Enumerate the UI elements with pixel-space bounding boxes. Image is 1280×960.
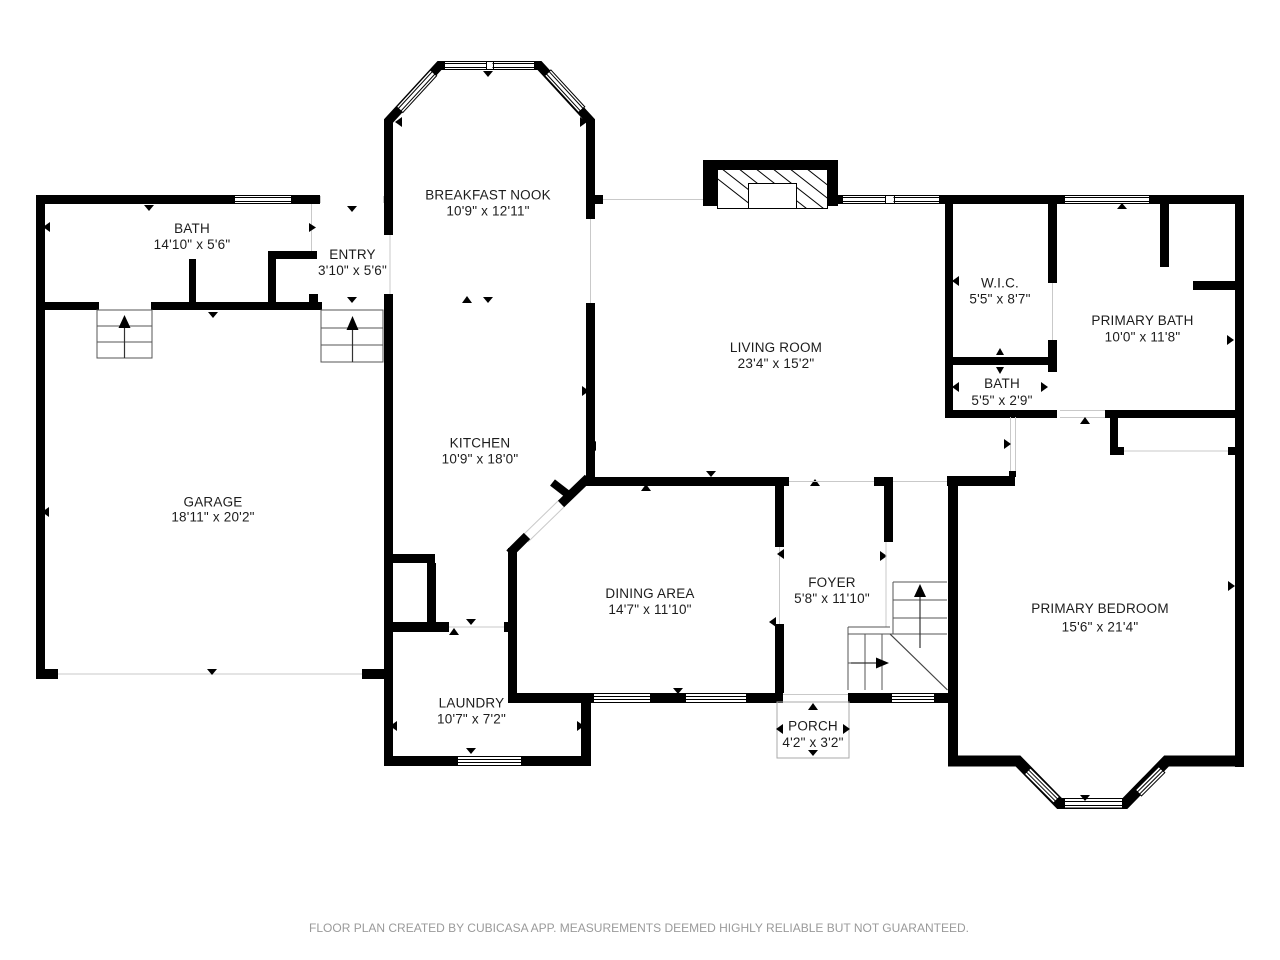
svg-text:23'4" x 15'2": 23'4" x 15'2" (738, 356, 815, 371)
svg-text:5'8" x 11'10": 5'8" x 11'10" (794, 591, 870, 606)
svg-text:14'10" x 5'6": 14'10" x 5'6" (154, 237, 231, 252)
svg-text:KITCHEN: KITCHEN (450, 436, 511, 451)
svg-text:4'2" x 3'2": 4'2" x 3'2" (782, 735, 843, 750)
svg-text:LIVING ROOM: LIVING ROOM (730, 340, 822, 355)
svg-text:FLOOR PLAN CREATED BY CUBICASA: FLOOR PLAN CREATED BY CUBICASA APP. MEAS… (309, 921, 969, 935)
svg-text:BATH: BATH (174, 221, 210, 236)
svg-text:BREAKFAST NOOK: BREAKFAST NOOK (425, 188, 551, 203)
svg-text:GARAGE: GARAGE (184, 495, 243, 510)
svg-text:5'5" x 2'9": 5'5" x 2'9" (971, 393, 1032, 408)
svg-text:14'7" x 11'10": 14'7" x 11'10" (608, 602, 691, 617)
svg-text:18'11" x 20'2": 18'11" x 20'2" (171, 510, 254, 525)
svg-text:10'7" x 7'2": 10'7" x 7'2" (437, 712, 506, 727)
svg-text:5'5" x 8'7": 5'5" x 8'7" (969, 292, 1030, 307)
svg-text:10'9" x 12'11": 10'9" x 12'11" (446, 204, 529, 219)
svg-text:10'9" x 18'0": 10'9" x 18'0" (442, 452, 519, 467)
svg-text:PRIMARY BATH: PRIMARY BATH (1091, 313, 1193, 328)
svg-text:FOYER: FOYER (808, 575, 856, 590)
svg-text:10'0" x 11'8": 10'0" x 11'8" (1105, 330, 1181, 345)
svg-text:PRIMARY BEDROOM: PRIMARY BEDROOM (1031, 601, 1169, 616)
svg-text:LAUNDRY: LAUNDRY (439, 696, 505, 711)
svg-text:BATH: BATH (984, 376, 1020, 391)
svg-text:15'6" x 21'4": 15'6" x 21'4" (1062, 620, 1139, 635)
svg-text:ENTRY: ENTRY (329, 247, 376, 262)
svg-text:W.I.C.: W.I.C. (981, 276, 1019, 291)
svg-text:DINING AREA: DINING AREA (605, 586, 694, 601)
svg-text:3'10" x 5'6": 3'10" x 5'6" (318, 263, 387, 278)
svg-text:PORCH: PORCH (788, 719, 838, 734)
